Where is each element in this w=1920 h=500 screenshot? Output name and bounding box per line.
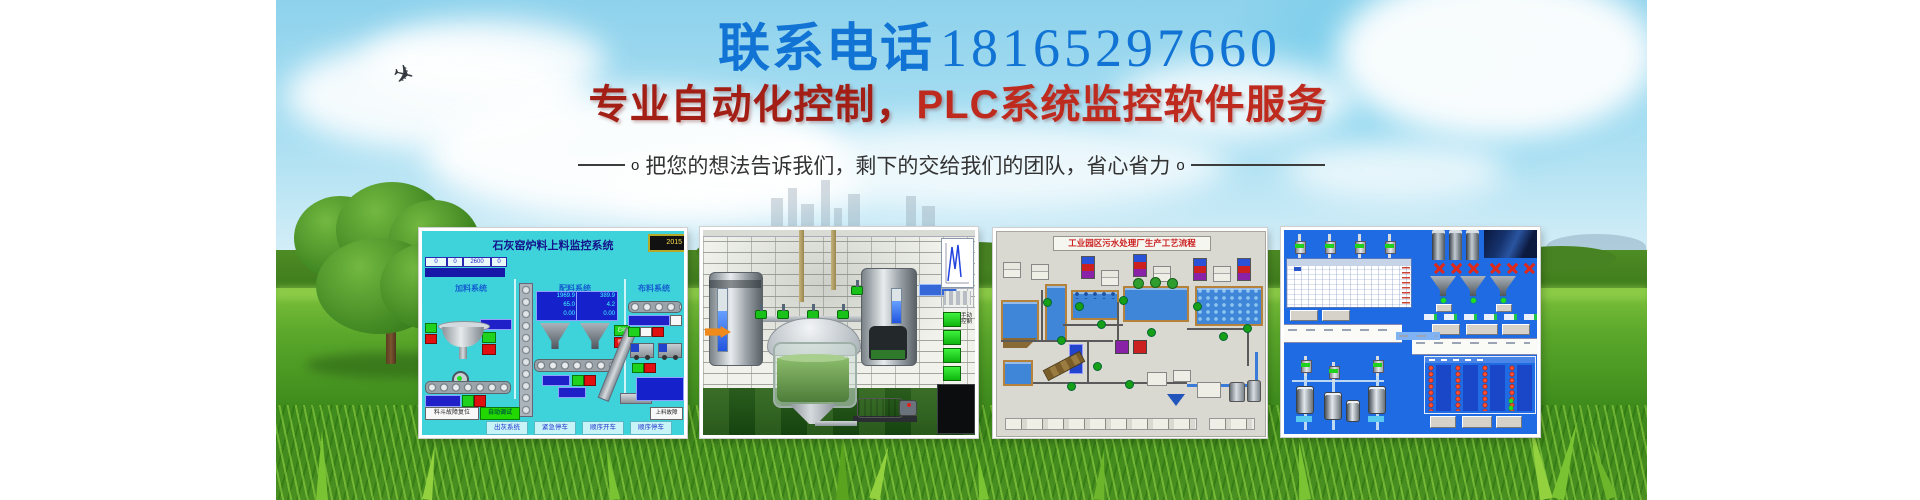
banner-canvas: ✈ 联系电话 18165297660 专业自动化控制，PLC系统监控软件服务 o… [0,0,1920,500]
pipeline-valve-icon [1298,356,1314,376]
subtitle-text: 把您的想法告诉我们，剩下的交给我们的团队，省心省力 [645,150,1170,180]
small-cell [670,315,682,326]
trolley-icon [630,343,654,358]
small-cell [640,327,652,337]
silo-icon [1432,230,1445,260]
headline-part2: PLC系统监控软件服务 [917,83,1328,127]
bottom-button-row [1209,418,1255,430]
strip-headers [1416,342,1530,344]
screen1-title: 石灰窑炉料上料监控系统 [422,237,684,253]
bottom-button-depicted: 顺序停车 [630,421,672,435]
vessel-icon [1296,386,1314,414]
indicator-stack [1081,256,1095,279]
vessel-icon [1324,392,1342,420]
conveyor-icon [534,359,620,372]
value-box [628,315,670,326]
strip-headers [1288,329,1396,331]
closed-valve-icon [1524,262,1535,273]
pipe-icon [815,421,857,426]
trolley-icon [658,343,682,358]
red-indicator [1133,340,1147,354]
plant-basin [1123,286,1189,322]
screenshot-lime-kiln-hmi: 石灰窑炉料上料监控系统 2015 0 0 2600 0 加料系统 配料系统 布料… [419,228,687,438]
hopper2-value: 389.9 [579,292,615,301]
batch-hopper-icon [580,323,610,349]
manual-control-label: 手动控制 [961,313,975,325]
tank-icon [1247,380,1261,402]
tank-green-material [871,350,905,359]
hopper-button-depicted [1436,304,1452,312]
bottom-button-depicted [1462,416,1492,428]
subtitle-marker-left: o [631,157,639,174]
valve-dot [1075,302,1084,311]
hopper1-data-box: 1969.9 65.0 0.00 [536,291,578,321]
bucket-elevator-icon [519,283,533,417]
valve-dot [1147,328,1156,337]
closed-valve-icon [1507,262,1518,273]
vessel-base [1368,416,1384,422]
pipeline-valve-icon [1322,234,1338,260]
conveyor-icon [628,301,682,313]
indicator-green [462,395,474,407]
tall-basin [1045,284,1067,342]
toolbar-icons [941,288,974,308]
valve-dot [1119,296,1128,305]
label-pair [1213,266,1231,282]
distribution-data-box [636,377,684,401]
window-chrome-strip [703,230,975,237]
subtitle-rule-left [578,164,625,166]
batch-hopper-icon [540,323,570,349]
value-box [542,375,570,386]
table-button-depicted [1322,310,1350,321]
phone-line: 联系电话 18165297660 [718,6,1281,81]
hopper-button-depicted [1496,304,1512,312]
screen1-top-cell: 0 [447,257,463,267]
green-status-dot [1471,298,1476,303]
hopper-stem-icon [459,347,467,359]
equipment-box [1197,382,1221,398]
alarm-panel [1424,356,1536,414]
valve-dot [1093,362,1102,371]
weigh-hopper-icon [1490,276,1516,296]
band-text [1399,335,1437,337]
green-indicator-button [943,312,961,327]
indicator-green [425,323,437,333]
status-text-strip [1424,314,1537,320]
valve-dot [1125,380,1134,389]
pipeline-valve-icon [1382,234,1398,260]
tank-band [709,280,761,288]
aeration-bubbles [1073,292,1117,299]
green-indicator-button [943,366,961,381]
pipeline-valve-icon [1370,356,1386,376]
indicator-red [584,375,596,386]
plant-icon [1167,278,1178,289]
green-valve-icon [755,310,767,319]
pipe-line [1117,302,1119,344]
indicator-red [644,363,656,373]
screenshot-wastewater-flow: 工业园区污水处理厂生产工艺流程 [993,228,1267,438]
closed-valve-icon [1434,262,1445,273]
green-liquid [777,358,849,402]
section-divider [514,279,516,399]
building-silhouette [788,188,797,232]
pipe-icon [799,230,804,302]
indicator-red [425,334,437,344]
pipe-line [1247,328,1249,366]
bottom-button-depicted [1496,416,1522,428]
alarm-title-text [1429,359,1489,361]
equipment-box [1147,372,1167,386]
valve-dot [1097,320,1106,329]
feed-hopper-icon [442,327,484,347]
green-valve-icon [837,310,849,319]
indicator-red [474,395,486,407]
pump-motor-icon [857,398,903,418]
valve-dot [1243,324,1252,333]
city-skyline [766,178,1086,234]
valve-dot [1057,336,1066,345]
small-basin [1003,360,1033,386]
pipeline-valve-icon [1352,234,1368,260]
closed-valve-icon [1468,262,1479,273]
hopper1-value: 1969.9 [539,292,575,301]
weigh-hopper-icon [1430,276,1456,296]
level-gauge-icon [891,288,902,324]
liquid-surface [779,354,847,362]
indicator-stack [1193,258,1207,281]
silo-icon [1449,230,1462,260]
status-strip [1412,338,1537,355]
hopper1-value: 0.00 [539,310,575,319]
screen1-top-cell: 2600 [463,257,491,267]
subtitle-rule-right [1191,164,1325,166]
reset-button-depicted: 料斗故障复位 [425,407,479,420]
pipeline-valve-icon [1326,362,1342,382]
label-pair [1031,264,1049,280]
hopper2-value: 0.00 [579,310,615,319]
phone-prefix: 联系电话 [718,6,934,81]
screen1-status-bar [425,268,505,277]
tank-icon [1229,382,1245,402]
weigh-hopper-icon [1460,276,1486,296]
green-status-dot [1501,298,1506,303]
indicator-stack [1133,254,1147,277]
vessel-icon [1346,400,1360,422]
bottom-button-depicted: 出灰系统 [486,421,528,435]
screenshot-batching-hmi [1281,227,1540,437]
subtitle-row: o 把您的想法告诉我们，剩下的交给我们的团队，省心省力 o [578,150,1325,180]
stop-indicator [482,344,496,355]
funnel-icon [1167,394,1185,406]
valve-dot [1219,332,1228,341]
closed-valve-icon [1451,262,1462,273]
screen1-lcd-display: 2015 [648,234,684,252]
green-indicator-button [943,330,961,345]
inset-photo [1484,230,1537,258]
pipe-icon [831,230,836,290]
data-table [1286,258,1412,308]
label-pair [1101,270,1119,286]
green-status-dot [1441,298,1446,303]
screen1-top-cell: 0 [491,257,507,267]
status-strip [1284,324,1402,343]
section-band [1396,332,1440,340]
valve-dot [1193,302,1202,311]
indicator-red [652,327,664,337]
inlet-basin [1001,300,1039,342]
purple-indicator [1115,340,1129,354]
screenshot-mixing-plant-3d: 手动控制 [700,227,978,438]
value-box [558,387,586,398]
pipeline-valve-icon [1292,234,1308,260]
conveyor-icon [425,381,511,394]
valve-dot [1043,298,1052,307]
pipe-line [1187,328,1247,330]
valve-dot [1067,382,1076,391]
headline-part1: 专业自动化控制， [589,83,917,127]
green-valve-icon [851,286,863,295]
building-silhouette [821,180,830,232]
alarm-panel-title [1425,357,1535,363]
start-indicator [482,332,496,343]
table-button-depicted [1290,310,1318,321]
green-status-dot [1509,399,1513,403]
phone-number: 18165297660 [940,17,1281,79]
vessel-icon [1368,386,1386,414]
plant-icon [1133,278,1144,289]
headline: 专业自动化控制，PLC系统监控软件服务 [558,72,1358,130]
bottom-button-depicted [1430,416,1456,428]
hopper2-data-box: 389.9 4.2 0.00 [576,291,618,321]
indicator-green [632,363,644,373]
indicator-stack [1237,258,1251,281]
clarifier-basin [1195,286,1263,326]
value-box [425,395,461,407]
message-box [937,384,975,434]
fault-button-depicted: 上料故障 [650,407,683,420]
screen3-title: 工业园区污水处理厂生产工艺流程 [1053,236,1211,251]
pipe-line [1041,290,1043,340]
auto-debug-button-depicted: 自动调试 [480,407,520,420]
equipment-box [1173,370,1191,382]
green-valve-icon [777,310,789,319]
label-pair [1003,262,1021,278]
alarm-grid [1427,365,1533,411]
screen1-top-cell: 0 [425,257,447,267]
table-value-column [1402,267,1410,305]
bottom-button-depicted: 紧急停车 [534,421,576,435]
section-dist-label: 布料系统 [628,283,680,294]
closed-valve-icon [1490,262,1501,273]
section-feed-label: 加料系统 [436,283,506,294]
pump-indicator [907,403,911,407]
plant-icon [1150,277,1161,288]
selected-cell [1294,267,1301,271]
green-indicator-button [943,348,961,363]
subtitle-marker-right: o [1176,157,1184,174]
green-status-dot [1509,406,1513,410]
pipe-line [1063,324,1123,326]
indicator-green [628,327,640,337]
bottom-button-row [1005,418,1197,430]
control-button-depicted [1502,324,1530,335]
level-gauge-icon [717,288,728,352]
silo-icon [1466,230,1479,260]
indicator-green [572,375,584,386]
hopper2-value: 4.2 [579,301,615,310]
hopper1-value: 65.0 [539,301,575,310]
vessel-base [1296,416,1312,422]
trend-chart [941,238,974,288]
control-button-depicted [1466,324,1498,335]
pipe-line [1087,340,1089,384]
bottom-button-depicted: 顺序开车 [582,421,624,435]
